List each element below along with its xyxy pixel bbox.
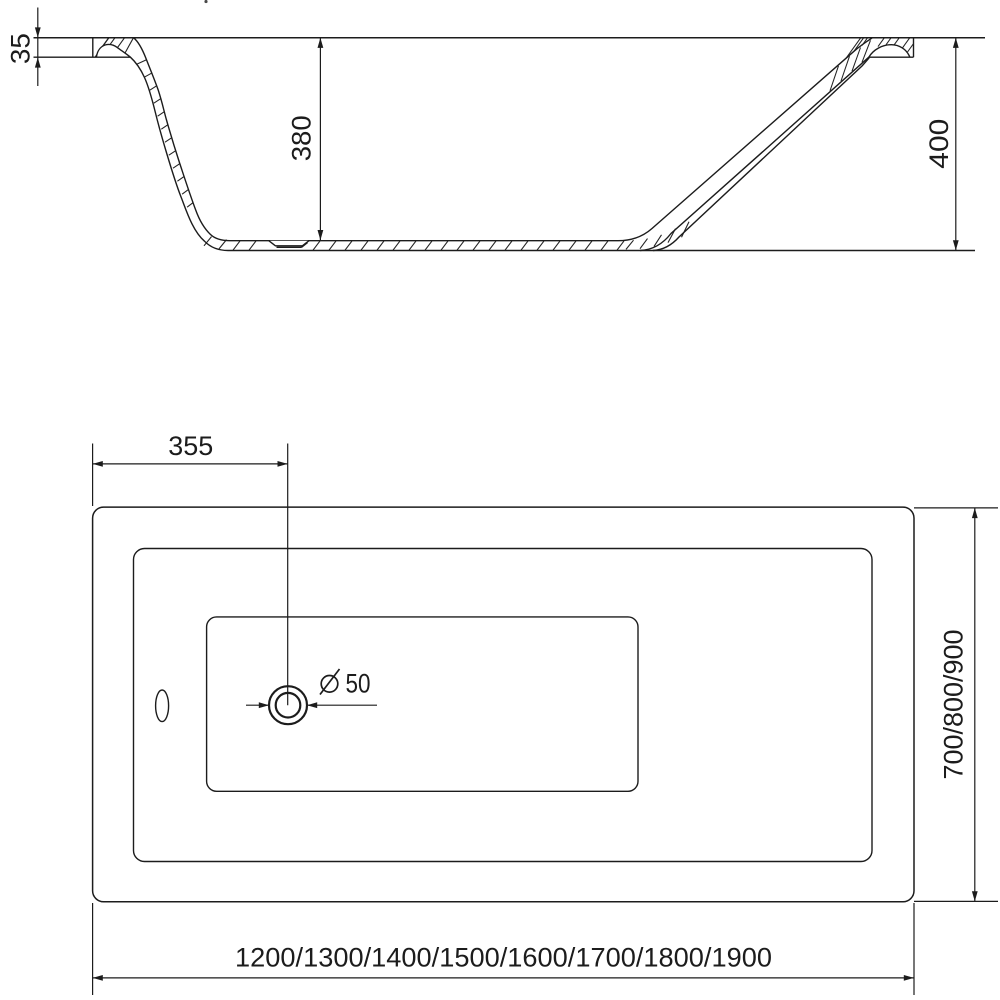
svg-text:1200/1300/1400/1500/1600/1700/: 1200/1300/1400/1500/1600/1700/1800/1900 [235,942,772,972]
svg-text:700/800/900: 700/800/900 [938,630,968,780]
svg-text:380: 380 [287,115,317,161]
svg-text:355: 355 [168,431,213,461]
svg-text:50: 50 [346,669,371,699]
svg-text:35: 35 [6,33,36,64]
svg-text:400: 400 [924,119,954,169]
